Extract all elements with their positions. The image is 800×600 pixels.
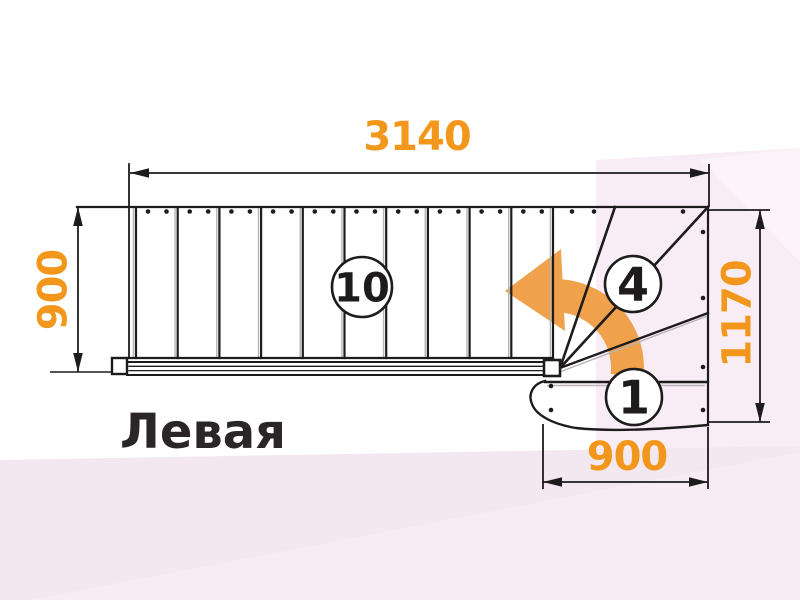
first-step-count: 1 [618,371,650,425]
tread-dot [331,209,336,214]
tread-dot [414,209,419,214]
tread-dot [289,209,294,214]
stair-plan-drawing: 10 4 1 3140 900 1170 900 Левая [0,0,800,600]
tread-dot [271,209,276,214]
tread-dot [396,209,401,214]
winders-count: 4 [617,258,649,312]
tread-dot [521,209,526,214]
tread-dot [479,209,484,214]
newel-post-square [544,360,560,376]
tread-dot [438,209,443,214]
tread-dot [354,209,359,214]
tread-dot [206,209,211,214]
tread-dot [146,209,151,214]
dim-bottom-value: 900 [587,434,668,480]
tread-dot [164,209,169,214]
straight-flight-count: 10 [334,265,390,311]
tread-dot [498,209,503,214]
dim-right-value: 1170 [714,260,760,367]
dim-top-value: 3140 [363,114,470,160]
tread-dot [373,209,378,214]
stringer-band [127,362,545,375]
left-post-square [112,358,127,374]
background [0,0,800,600]
tread-dot [456,209,461,214]
tread-dot [187,209,192,214]
tread-dot [248,209,253,214]
dim-left-value: 900 [30,250,76,331]
tread-dot [540,209,545,214]
stair-plan-page: 10 4 1 3140 900 1170 900 Левая [0,0,800,600]
tread-dot [229,209,234,214]
page-title: Левая [120,404,286,460]
tread-dot [313,209,318,214]
